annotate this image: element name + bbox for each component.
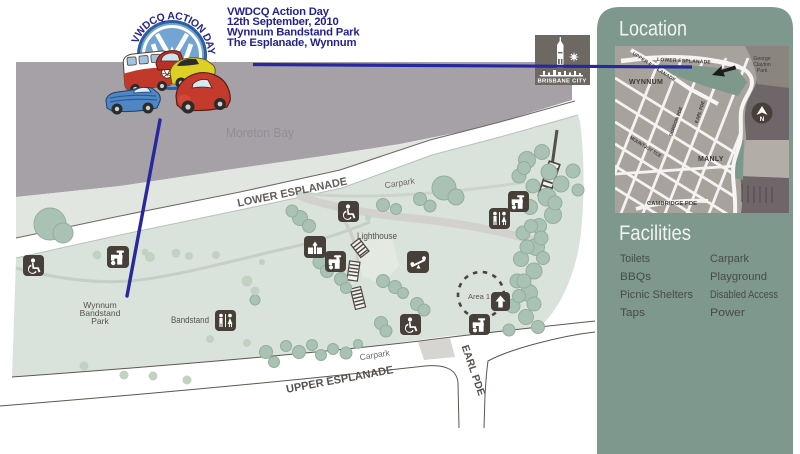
svg-text:Location: Location <box>619 18 687 41</box>
svg-text:Bandstand: Bandstand <box>171 315 209 325</box>
svg-text:CAMBRIDGE PDE: CAMBRIDGE PDE <box>647 201 697 207</box>
svg-text:Toilets: Toilets <box>620 253 650 265</box>
svg-text:Area 1: Area 1 <box>468 292 490 301</box>
svg-text:WYNNUM: WYNNUM <box>629 79 663 86</box>
svg-text:Picnic Shelters: Picnic Shelters <box>620 289 693 301</box>
svg-text:Playground: Playground <box>710 271 767 283</box>
svg-text:Facilities: Facilities <box>619 222 691 245</box>
svg-text:Taps: Taps <box>620 307 645 319</box>
svg-text:Lighthouse: Lighthouse <box>357 231 397 241</box>
svg-text:The Esplanade, Wynnum: The Esplanade, Wynnum <box>227 37 356 49</box>
svg-text:BRISBANE CITY: BRISBANE CITY <box>538 79 587 85</box>
svg-text:Disabled Access: Disabled Access <box>710 289 778 301</box>
svg-text:BBQs: BBQs <box>620 271 651 283</box>
svg-text:MANLY: MANLY <box>698 156 724 163</box>
svg-text:Moreton Bay: Moreton Bay <box>226 125 294 140</box>
svg-text:Park: Park <box>757 68 768 74</box>
svg-text:N: N <box>760 116 765 123</box>
svg-text:Power: Power <box>710 307 746 319</box>
svg-text:Carpark: Carpark <box>710 253 750 265</box>
svg-text:Park: Park <box>91 316 109 326</box>
